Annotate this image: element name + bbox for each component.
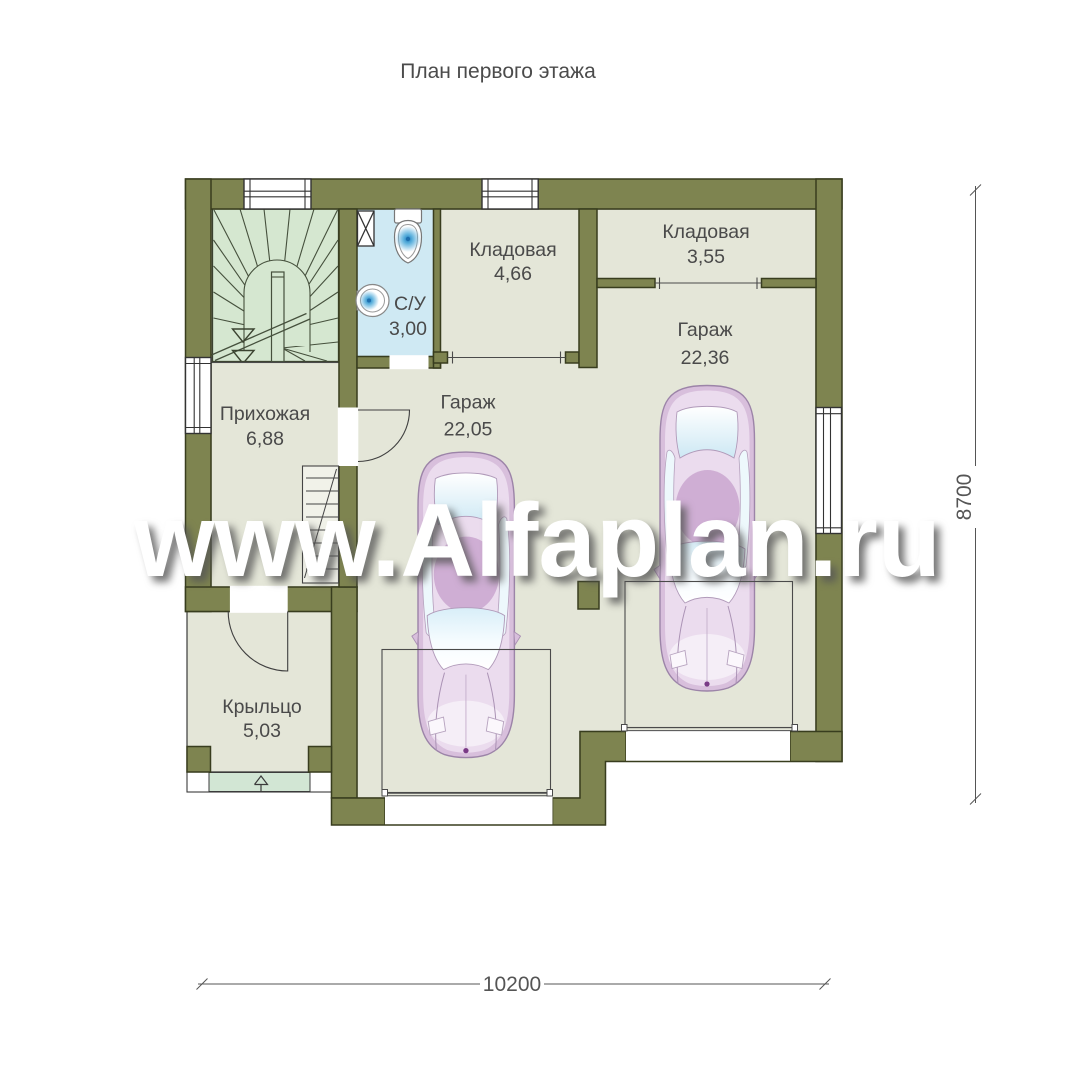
- svg-text:Крыльцо: Крыльцо: [222, 696, 302, 718]
- svg-text:4,66: 4,66: [494, 263, 532, 285]
- svg-text:10200: 10200: [483, 973, 541, 996]
- svg-text:22,05: 22,05: [444, 419, 493, 441]
- svg-text:Гараж: Гараж: [677, 319, 732, 341]
- svg-text:С/У: С/У: [394, 293, 427, 315]
- svg-text:Прихожая: Прихожая: [220, 403, 310, 425]
- svg-text:www.Alfaplan.ru: www.Alfaplan.ru: [133, 482, 941, 598]
- svg-text:5,03: 5,03: [243, 720, 281, 742]
- svg-text:3,00: 3,00: [389, 318, 427, 340]
- svg-text:План первого этажа: План первого этажа: [400, 60, 596, 83]
- svg-text:8700: 8700: [953, 474, 976, 521]
- svg-text:6,88: 6,88: [246, 428, 284, 450]
- svg-text:3,55: 3,55: [687, 246, 725, 268]
- svg-text:Кладовая: Кладовая: [662, 221, 749, 243]
- svg-text:Гараж: Гараж: [440, 392, 495, 414]
- svg-text:Кладовая: Кладовая: [469, 239, 556, 261]
- svg-text:22,36: 22,36: [681, 347, 730, 369]
